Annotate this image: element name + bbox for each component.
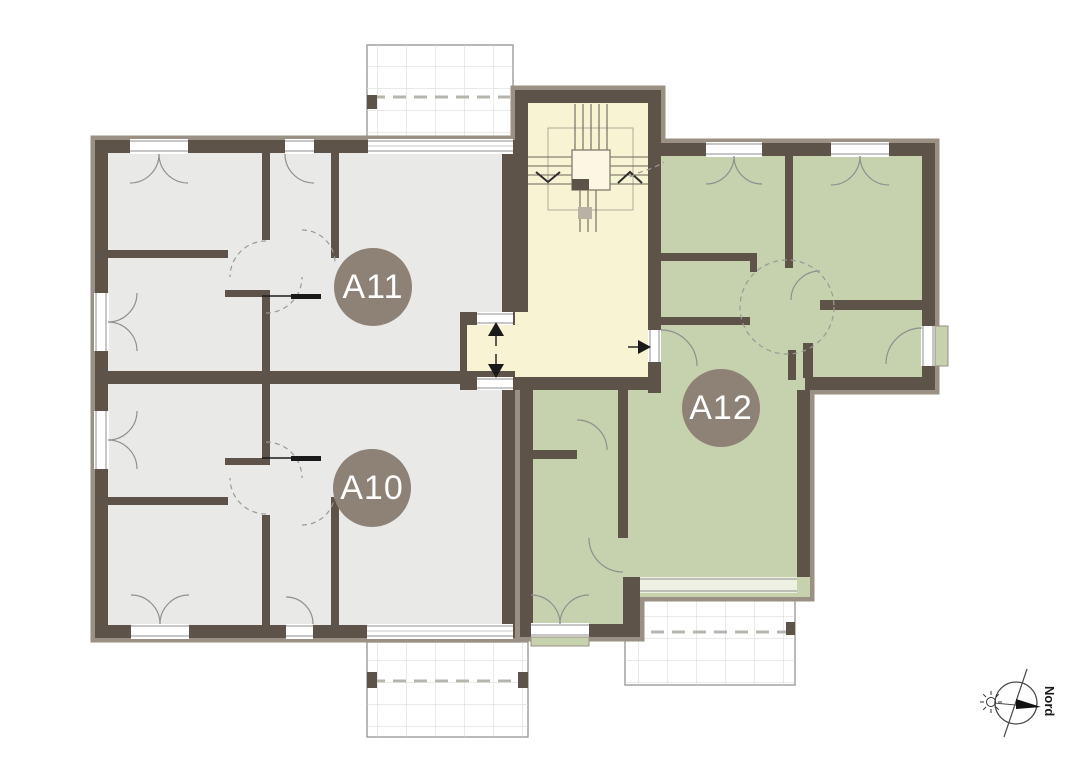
sun-icon xyxy=(980,691,1002,713)
french-door xyxy=(706,142,762,157)
french-door xyxy=(531,623,589,638)
terrace-pillar xyxy=(518,672,528,688)
terrace-pillar xyxy=(367,95,377,109)
window-band xyxy=(368,139,513,154)
french-window xyxy=(94,411,109,469)
terrace-bottom-left xyxy=(367,642,528,737)
door xyxy=(286,624,313,639)
apartment-entry-door xyxy=(477,377,513,390)
terrace-bottom-right xyxy=(625,595,795,685)
party-wall xyxy=(95,371,515,384)
compass xyxy=(980,669,1041,737)
apartment-a11-a10-floor xyxy=(95,140,515,638)
french-window xyxy=(94,293,109,351)
apartment-label-a10: A10 xyxy=(333,449,411,527)
apartment-entry-door xyxy=(477,312,513,325)
apartment-entry-door xyxy=(648,330,661,362)
north-label: Nord xyxy=(1042,686,1057,716)
french-door xyxy=(831,142,889,157)
door xyxy=(285,139,314,154)
floor-plan-page: A11 A10 A12 Nord xyxy=(0,0,1076,780)
apartment-label-a12: A12 xyxy=(682,369,760,447)
french-door xyxy=(131,624,189,639)
stairwell-floor xyxy=(515,90,661,380)
apartment-label-a11: A11 xyxy=(334,248,412,326)
floor-plan-drawing xyxy=(0,0,1076,780)
window-band xyxy=(367,624,513,639)
terrace-pillar xyxy=(367,672,377,688)
terrace-pillar xyxy=(786,622,795,635)
window-band xyxy=(640,577,797,593)
french-door xyxy=(130,139,188,154)
terrace-top xyxy=(367,45,513,140)
exterior-door xyxy=(921,326,936,366)
